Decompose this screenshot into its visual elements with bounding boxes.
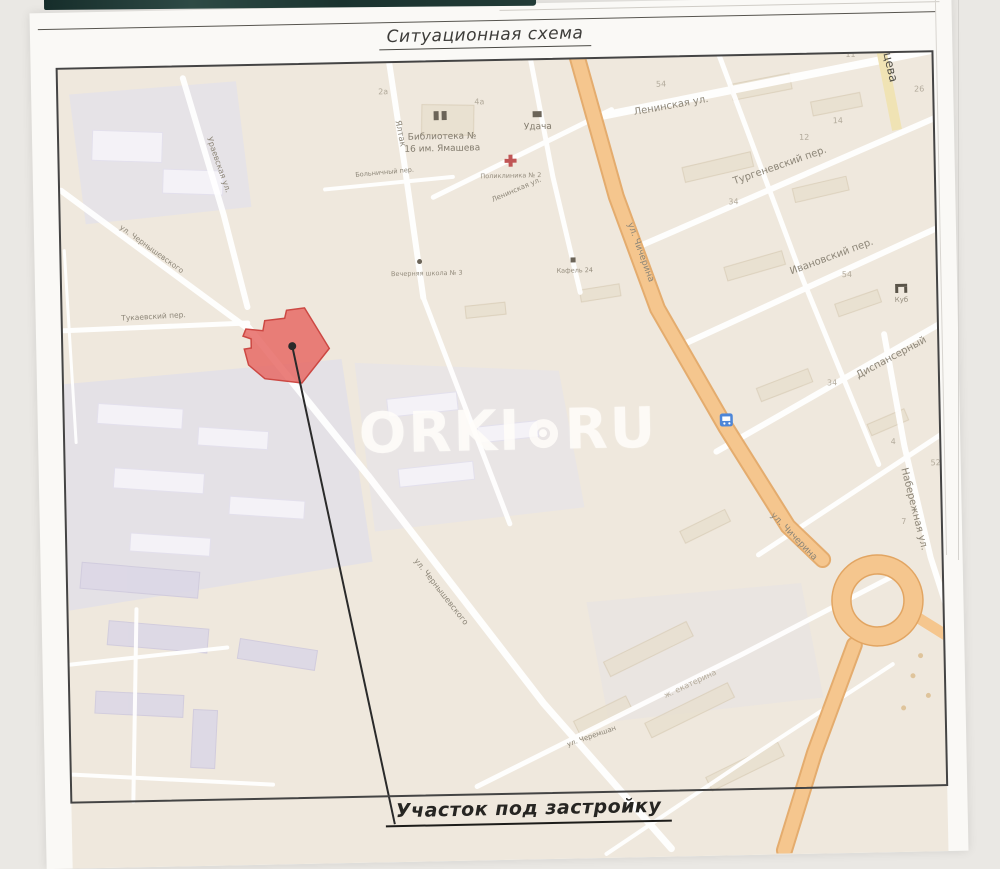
svg-text:34: 34 <box>728 197 738 206</box>
svg-text:12: 12 <box>799 133 809 142</box>
watermark-right-text: RU <box>564 395 658 462</box>
page-title-text: Ситуационная схема <box>378 23 591 50</box>
watermark-left-text: ORKI <box>358 398 522 466</box>
store-label: Кафель 24 <box>556 266 593 275</box>
svg-text:54: 54 <box>842 270 852 279</box>
svg-text:2а: 2а <box>378 87 388 96</box>
transit-stop-icon <box>720 413 733 426</box>
library-label-line2: 16 им. Ямашева <box>404 143 480 155</box>
plot-caption: Участок под застройку <box>385 795 671 828</box>
svg-text:4а: 4а <box>474 97 484 106</box>
watermark: ORKI RU <box>347 393 668 469</box>
paper-edge-line <box>958 0 959 560</box>
svg-text:7: 7 <box>901 517 906 526</box>
svg-text:26: 26 <box>914 84 924 93</box>
kub-label: Куб <box>895 296 909 304</box>
svg-text:34: 34 <box>827 378 837 387</box>
svg-text:11: 11 <box>845 50 855 59</box>
svg-text:14: 14 <box>833 116 843 125</box>
store-icon <box>571 257 576 262</box>
scheme-sheet: Ситуационная схема <box>30 0 969 869</box>
plot-caption-text: Участок под застройку <box>386 795 672 828</box>
scanned-document: Ситуационная схема <box>0 0 1000 864</box>
svg-text:4: 4 <box>891 437 896 446</box>
svg-text:52: 52 <box>931 458 941 467</box>
library-label-line1: Библиотека № <box>408 131 477 142</box>
school-label: Вечерняя школа № 3 <box>391 269 463 278</box>
svg-text:54: 54 <box>656 80 666 89</box>
clinic-label: Поликлиника № 2 <box>480 171 541 180</box>
shop-label: Удача <box>524 122 552 133</box>
watermark-target-icon <box>528 418 558 448</box>
shop-icon <box>533 111 542 117</box>
